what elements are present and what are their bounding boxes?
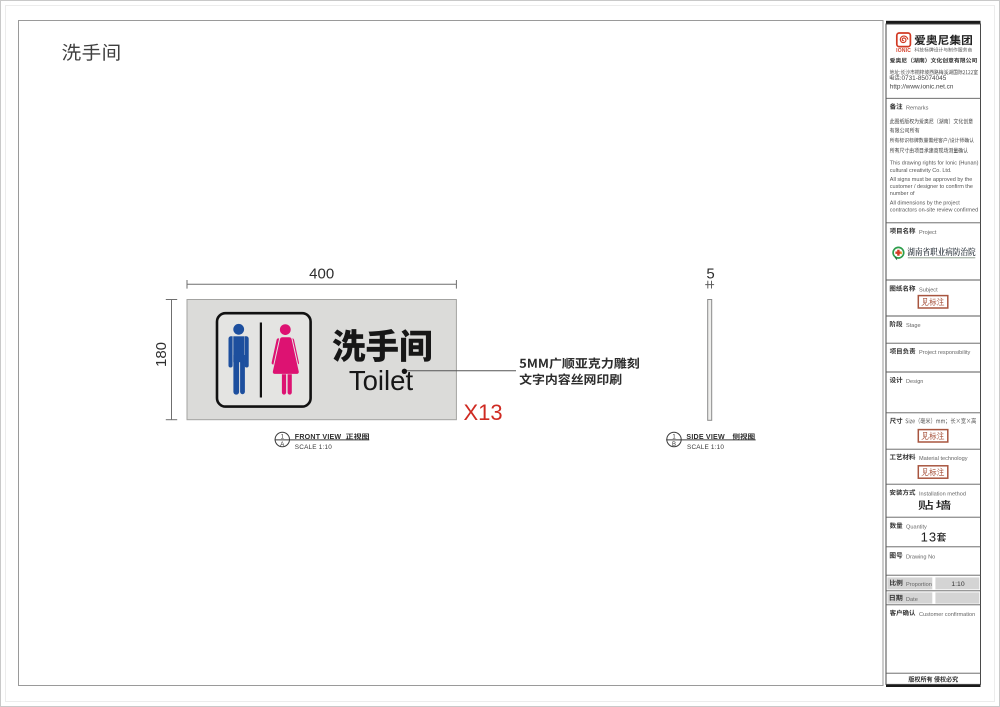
svg-text:0731-85074045: 0731-85074045 [902,75,947,82]
svg-text:contractors on-site review con: contractors on-site review confirmed [890,207,978,213]
svg-text:Subject: Subject [919,287,938,293]
svg-text:number of: number of [890,191,915,197]
svg-text:Customer confirmation: Customer confirmation [919,612,975,618]
svg-text:400: 400 [309,266,334,283]
svg-text:Date: Date [906,597,918,603]
svg-text:Remarks: Remarks [906,105,929,111]
svg-text:SCALE 1:10: SCALE 1:10 [687,444,724,451]
svg-text:SCALE 1:10: SCALE 1:10 [295,444,332,451]
svg-text:Material technology: Material technology [919,456,968,462]
svg-text:customer / designer to confirm: customer / designer to confirm the [890,184,973,190]
svg-text:Installation method: Installation method [919,491,966,497]
svg-text:FRONT VIEW: FRONT VIEW [295,433,342,441]
svg-text:Design: Design [906,379,923,385]
svg-text:cultural creativity Co. Ltd.: cultural creativity Co. Ltd. [890,168,952,174]
svg-text:X13: X13 [464,400,503,425]
svg-text:This drawing rights for Ionic: This drawing rights for Ionic (Hunan) [890,161,979,167]
svg-text:All dimensions by the project: All dimensions by the project [890,200,960,206]
svg-text:IONIC: IONIC [896,48,911,54]
svg-text:Project: Project [919,230,937,236]
svg-text:1:10: 1:10 [951,581,964,588]
svg-text:Drawing No: Drawing No [906,554,935,560]
svg-text:180: 180 [153,342,170,367]
svg-text:http://www.ionic.net.cn: http://www.ionic.net.cn [890,83,954,90]
svg-text:Proportion: Proportion [906,582,932,588]
svg-text:5: 5 [706,265,714,282]
svg-text:All signs must be approved by: All signs must be approved by the [890,177,973,183]
svg-text:SIDE VIEW: SIDE VIEW [686,433,725,441]
svg-text:13: 13 [921,530,937,545]
svg-text:B: B [672,442,676,448]
svg-text:Stage: Stage [906,323,921,329]
svg-text:A: A [280,442,284,448]
svg-text:Project responsibility: Project responsibility [919,350,971,356]
